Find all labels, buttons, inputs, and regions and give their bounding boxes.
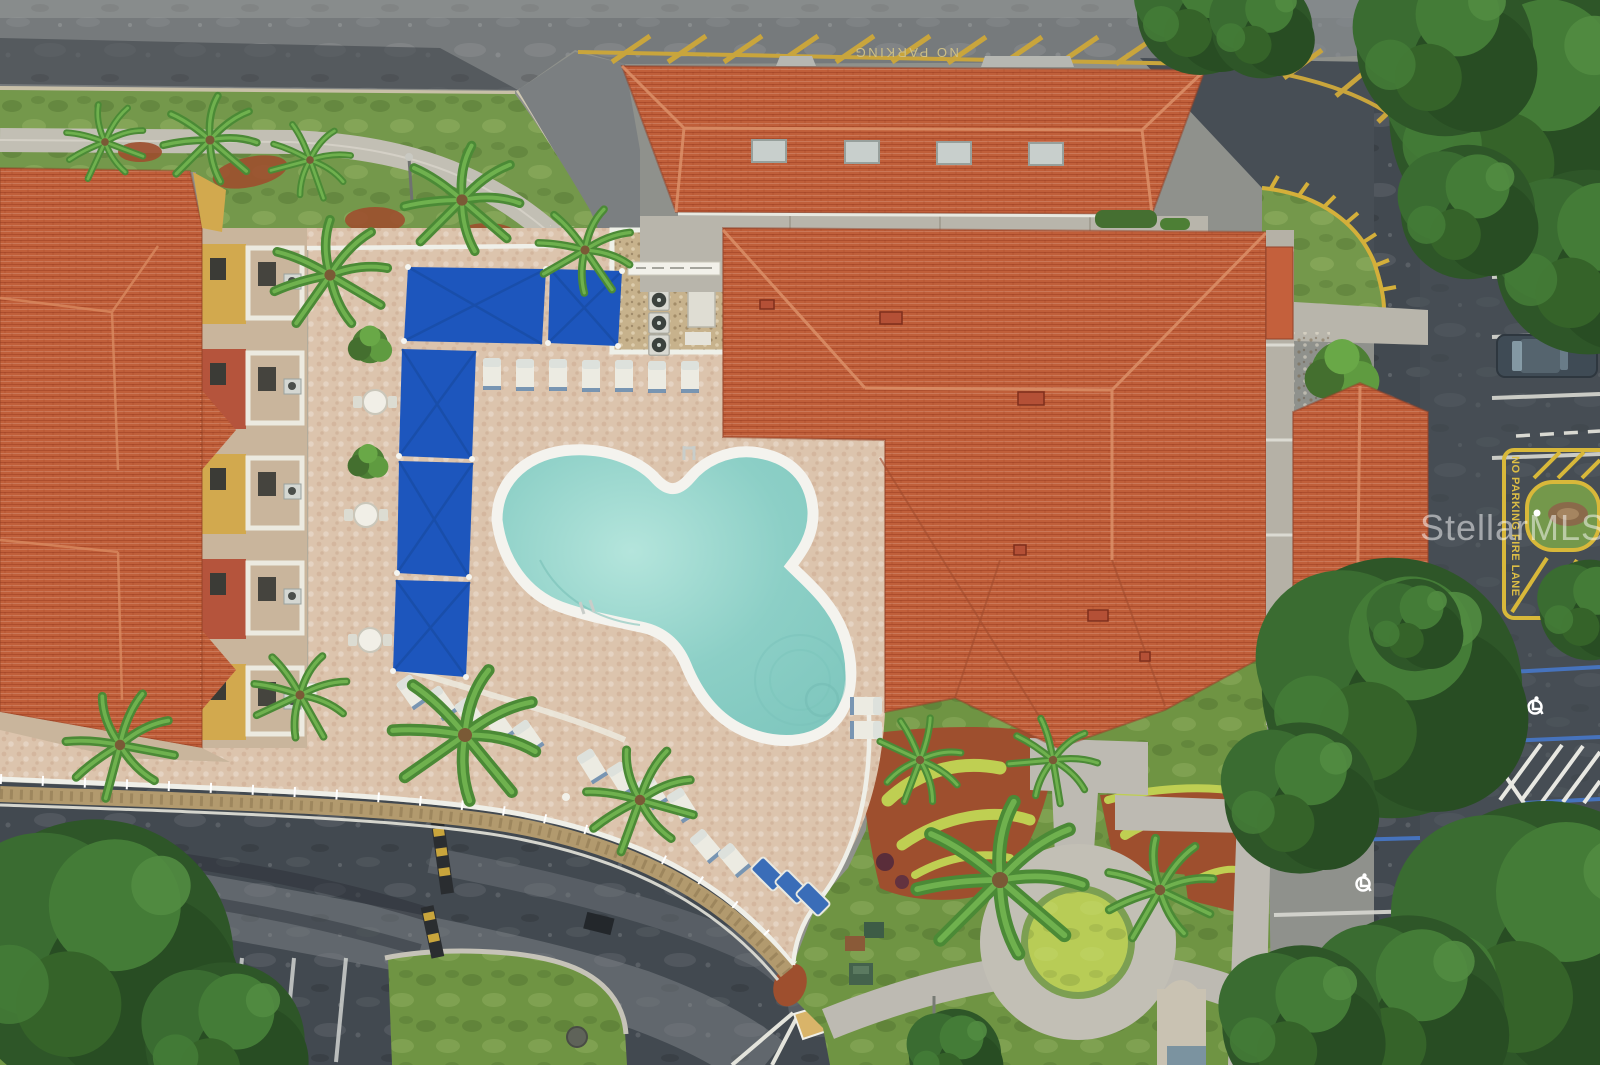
windshield [1512, 341, 1522, 371]
left-condo-building [0, 168, 307, 762]
road-paint-no-parking: NO PARKING [853, 45, 959, 60]
concrete-apron [776, 56, 816, 66]
deck-pole [562, 793, 570, 801]
lounger [648, 361, 666, 393]
mulch-square [845, 936, 865, 951]
hedge [1160, 218, 1190, 230]
lounger [850, 697, 882, 715]
bench [1167, 1046, 1206, 1065]
aerial-photo-canvas: NO PARKING [0, 0, 1600, 1065]
lounger [850, 721, 882, 739]
utility-box [864, 922, 884, 938]
purple-shrub [895, 875, 909, 889]
lounger [681, 361, 699, 393]
mls-watermark: StellarMLS [1420, 507, 1600, 548]
concrete-apron [981, 56, 1074, 67]
pool-pump-fan [649, 313, 669, 333]
light-pole-head [405, 153, 413, 161]
equipment-box [685, 332, 711, 345]
lounger [483, 358, 501, 390]
lounger [549, 359, 567, 391]
lounger [582, 360, 600, 392]
hedge [1095, 210, 1157, 228]
lounger [615, 360, 633, 392]
parapet-line [678, 214, 1150, 216]
manhole-cover [567, 1027, 587, 1047]
pool-pump-fan [649, 335, 669, 355]
lounger [516, 359, 534, 391]
aerial-photo: NO PARKING [0, 0, 1600, 1065]
purple-shrub [876, 853, 894, 871]
orange-awning [1266, 247, 1293, 339]
pool-pump-fan [649, 290, 669, 310]
